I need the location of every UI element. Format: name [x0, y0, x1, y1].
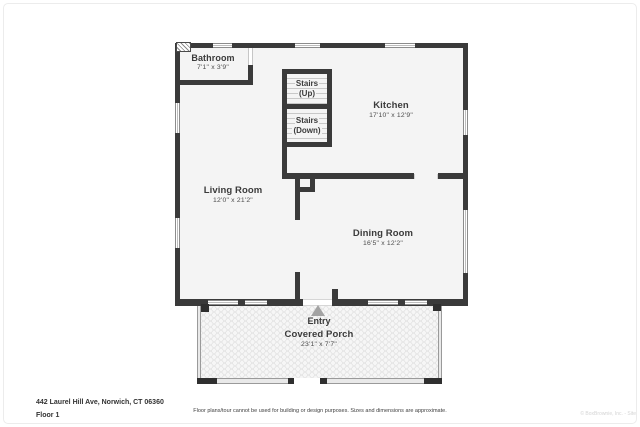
window	[245, 300, 267, 305]
covered-porch-name: Covered Porch	[285, 329, 354, 340]
living-dining-divider-upper	[295, 179, 300, 220]
stairs-up-label: Stairs	[295, 79, 319, 88]
porch-rail-bottom-right	[327, 378, 424, 384]
window	[463, 110, 468, 135]
room-label-bathroom: Bathroom 7'1" x 3'9"	[191, 53, 234, 71]
window	[208, 300, 238, 305]
covered-porch-dims: 23'1" x 7'7"	[285, 341, 354, 348]
living-room-name: Living Room	[204, 185, 263, 196]
room-label-kitchen: Kitchen 17'10" x 12'9"	[369, 100, 413, 119]
room-label-living-room: Living Room 12'0" x 21'2"	[204, 185, 263, 204]
window	[213, 43, 232, 48]
living-dining-divider-lower	[295, 272, 300, 305]
dining-room-name: Dining Room	[353, 228, 413, 239]
porch-top-post-left	[201, 304, 209, 312]
floor-label: Floor 1	[36, 412, 59, 419]
window	[175, 218, 180, 248]
entry-label: Entry	[307, 316, 330, 326]
kitchen-dining-opening	[414, 174, 438, 179]
kitchen-dims: 17'10" x 12'9"	[369, 112, 413, 119]
disclaimer-text: Floor plans/tour cannot be used for buil…	[193, 408, 446, 414]
porch-step-post	[320, 378, 327, 384]
porch-corner-post	[197, 378, 217, 384]
entry-arrow-icon	[311, 305, 325, 316]
window	[368, 300, 398, 305]
living-room-dims: 12'0" x 21'2"	[204, 197, 263, 204]
entry-wall-stub	[332, 289, 338, 305]
room-label-covered-porch: Covered Porch 23'1" x 7'7"	[285, 329, 354, 348]
bathroom-wall-right	[248, 65, 253, 85]
window	[295, 43, 320, 48]
porch-steps-opening	[294, 378, 320, 384]
chimney-nook-right	[310, 179, 315, 192]
stairs-wall-bottom	[282, 142, 332, 147]
porch-rail-right	[438, 306, 442, 379]
kitchen-dining-wall-right	[438, 173, 463, 179]
porch-rail-bottom-left	[217, 378, 288, 384]
door-hatch-icon	[176, 42, 191, 52]
stairs-down: Stairs (Down)	[287, 109, 327, 142]
porch-corner-post	[424, 378, 442, 384]
bathroom-door-opening	[248, 48, 253, 65]
window	[405, 300, 427, 305]
stairs-up-direction: (Up)	[298, 89, 316, 98]
dining-room-dims: 16'5" x 12'2"	[353, 240, 413, 247]
bathroom-name: Bathroom	[191, 53, 234, 63]
stairs-down-label: Stairs	[295, 116, 319, 125]
porch-rail-left	[197, 306, 201, 379]
room-label-dining-room: Dining Room 16'5" x 12'2"	[353, 228, 413, 247]
kitchen-dining-wall-left	[282, 173, 414, 179]
floor-plan-page: Stairs (Up) Stairs (Down) Bathroom 7'1" …	[0, 0, 640, 427]
kitchen-name: Kitchen	[369, 100, 413, 111]
porch-top-post-right	[433, 304, 441, 311]
window	[385, 43, 415, 48]
bathroom-wall-bottom	[175, 80, 251, 85]
stairs-down-direction: (Down)	[292, 126, 321, 135]
bathroom-dims: 7'1" x 3'9"	[191, 64, 234, 71]
provider-watermark: © BoxBrownie, Inc. - Site	[580, 411, 636, 417]
window	[463, 210, 468, 273]
window	[175, 103, 180, 133]
address-text: 442 Laurel Hill Ave, Norwich, CT 06360	[36, 399, 164, 406]
stairs-up: Stairs (Up)	[287, 74, 327, 104]
